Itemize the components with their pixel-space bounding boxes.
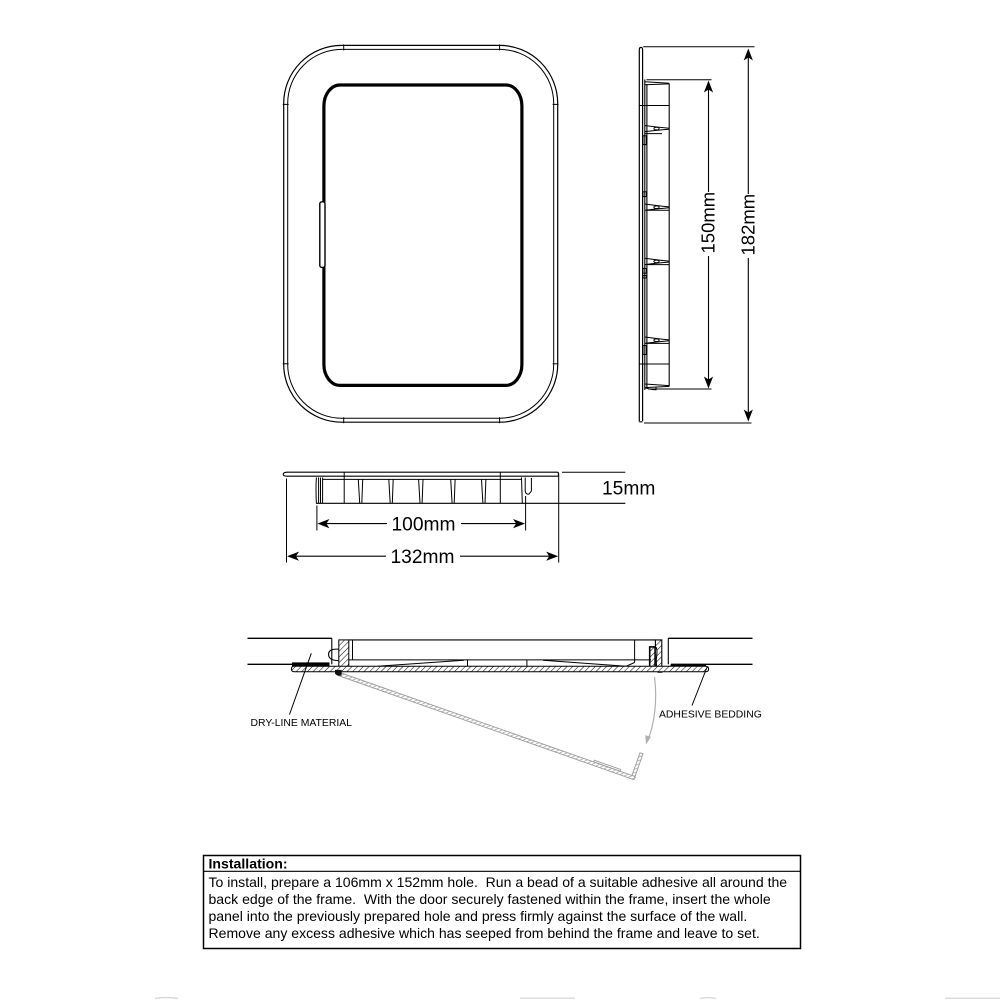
svg-text:DRY-LINE MATERIAL: DRY-LINE MATERIAL (251, 718, 353, 729)
svg-text:132mm: 132mm (391, 547, 455, 568)
svg-text:back edge of the frame. With: back edge of the frame. With the door se… (209, 891, 771, 907)
svg-text:15mm: 15mm (602, 479, 655, 500)
svg-text:Remove any excess adhesive whi: Remove any excess adhesive which has see… (209, 925, 760, 941)
svg-text:Installation:: Installation: (209, 856, 288, 872)
svg-text:To install, prepare a 106mm x: To install, prepare a 106mm x 152mm hole… (209, 874, 788, 890)
svg-text:panel into the previously prep: panel into the previously prepared hole … (209, 908, 748, 924)
svg-text:182mm: 182mm (737, 194, 758, 256)
svg-text:150mm: 150mm (698, 192, 719, 254)
svg-text:100mm: 100mm (392, 515, 456, 536)
svg-text:ADHESIVE BEDDING: ADHESIVE BEDDING (659, 710, 762, 721)
